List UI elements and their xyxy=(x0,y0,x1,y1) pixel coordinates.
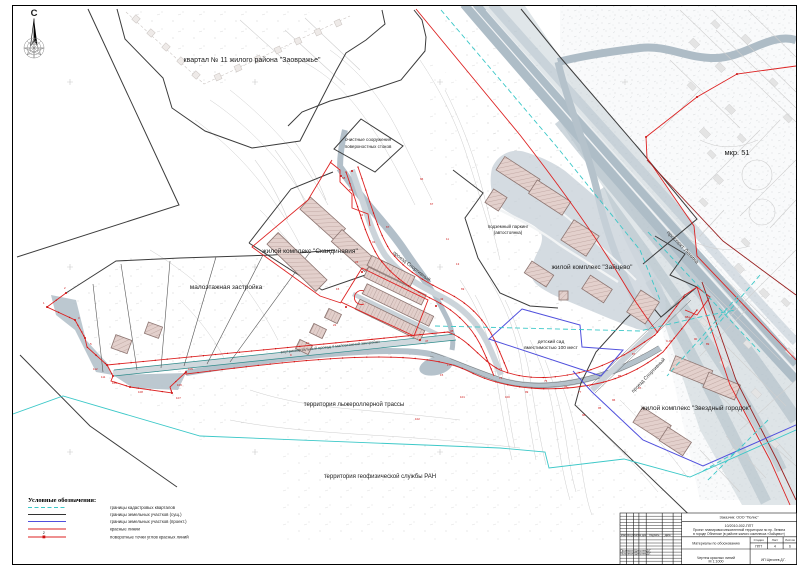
svg-text:Листов: Листов xyxy=(785,538,795,542)
svg-text:10: 10 xyxy=(306,341,310,345)
svg-text:59: 59 xyxy=(349,188,353,192)
svg-text:Щеголев Д.Г.: Щеголев Д.Г. xyxy=(635,552,652,556)
svg-text:Материалы по обоснованию: Материалы по обоснованию xyxy=(692,542,740,546)
svg-text:85: 85 xyxy=(618,374,622,378)
svg-text:96: 96 xyxy=(612,398,616,402)
svg-text:Подпись: Подпись xyxy=(649,533,660,537)
svg-text:красные линии: красные линии xyxy=(110,527,141,532)
svg-text:43: 43 xyxy=(440,297,444,301)
svg-text:границы земельных участков (су: границы земельных участков (сущ.) xyxy=(110,512,182,517)
svg-text:11: 11 xyxy=(446,237,449,241)
svg-text:67: 67 xyxy=(386,225,390,229)
svg-text:89: 89 xyxy=(706,342,710,346)
svg-text:112: 112 xyxy=(93,367,98,371)
svg-text:47: 47 xyxy=(425,339,429,343)
svg-text:квартал № 11 жилого района "За: квартал № 11 жилого района "Заовражье" xyxy=(184,56,321,64)
svg-text:74: 74 xyxy=(499,376,503,380)
svg-text:90: 90 xyxy=(694,337,698,341)
svg-text:Условные обозначения:: Условные обозначения: xyxy=(28,497,96,504)
svg-text:Дата: Дата xyxy=(665,533,671,537)
svg-text:очистные сооружения: очистные сооружения xyxy=(345,137,392,142)
svg-text:76: 76 xyxy=(564,385,568,389)
svg-text:67: 67 xyxy=(430,202,434,206)
svg-text:подземный паркинг: подземный паркинг xyxy=(488,223,529,229)
svg-text:Исполнил: Исполнил xyxy=(621,552,634,556)
svg-text:66: 66 xyxy=(420,177,424,181)
svg-text:109: 109 xyxy=(112,381,117,385)
svg-text:Лист: Лист xyxy=(772,538,779,542)
svg-text:22: 22 xyxy=(333,323,337,327)
svg-text:64: 64 xyxy=(360,213,364,217)
svg-text:15: 15 xyxy=(440,373,444,377)
svg-text:13: 13 xyxy=(456,262,460,266)
svg-text:99: 99 xyxy=(525,390,529,394)
svg-text:38: 38 xyxy=(450,329,454,333)
svg-text:ППТ: ППТ xyxy=(755,544,762,548)
svg-text:территория лыжероллерной трасс: территория лыжероллерной трассы xyxy=(304,401,404,408)
svg-text:15: 15 xyxy=(336,287,340,291)
svg-text:в городе Обнинске (в районе жи: в городе Обнинске (в районе жилого компл… xyxy=(693,532,785,536)
svg-text:С-91: С-91 xyxy=(666,339,673,343)
svg-text:Заказчик: ООО "Полис": Заказчик: ООО "Полис" xyxy=(719,516,759,520)
svg-text:100: 100 xyxy=(505,395,510,399)
svg-text:98: 98 xyxy=(582,413,586,417)
svg-text:территория геофизической служб: территория геофизической службы РАН xyxy=(324,473,436,480)
svg-text:102: 102 xyxy=(415,417,420,421)
svg-text:мкр. 51: мкр. 51 xyxy=(724,148,749,157)
svg-text:границы кадастровых кварталов: границы кадастровых кварталов xyxy=(110,505,176,510)
svg-text:ИП Щеголев Д.Г.: ИП Щеголев Д.Г. xyxy=(761,558,786,562)
svg-text:границы земельных участков (пр: границы земельных участков (проект.) xyxy=(110,519,187,524)
svg-text:Изм: Изм xyxy=(621,533,626,537)
svg-text:24: 24 xyxy=(355,260,359,264)
svg-text:17: 17 xyxy=(447,363,451,367)
svg-text:87: 87 xyxy=(632,352,636,356)
svg-text:58: 58 xyxy=(342,176,346,180)
svg-text:105: 105 xyxy=(188,367,193,371)
svg-text:Стадия: Стадия xyxy=(754,538,765,542)
svg-text:вместимостью 100 мест: вместимостью 100 мест xyxy=(524,345,578,351)
svg-text:поворотные точки углов красных: поворотные точки углов красных линий xyxy=(110,535,189,540)
svg-text:жилой комплекс "Скандинавия": жилой комплекс "Скандинавия" xyxy=(262,247,358,255)
svg-text:108: 108 xyxy=(138,390,143,394)
svg-text:73: 73 xyxy=(499,367,503,371)
svg-text:М 1:1000: М 1:1000 xyxy=(709,560,724,564)
svg-text:жилой комплекс "Звездный город: жилой комплекс "Звездный городок" xyxy=(641,404,751,412)
svg-text:88а: 88а xyxy=(685,315,690,319)
svg-text:111: 111 xyxy=(101,375,106,379)
svg-text:75: 75 xyxy=(544,379,548,383)
svg-text:2: 2 xyxy=(43,531,45,535)
svg-text:101: 101 xyxy=(460,395,465,399)
svg-text:№ док.: № док. xyxy=(638,534,647,537)
svg-text:жилой комплекс "Зайцево": жилой комплекс "Зайцево" xyxy=(552,263,634,271)
svg-text:С: С xyxy=(31,8,38,19)
svg-text:детский сад: детский сад xyxy=(538,338,565,345)
svg-text:95: 95 xyxy=(598,406,602,410)
svg-text:малоэтажная застройка: малоэтажная застройка xyxy=(190,283,263,291)
svg-text:поверхностных стоков: поверхностных стоков xyxy=(345,144,392,149)
svg-text:69: 69 xyxy=(461,287,465,291)
svg-text:6: 6 xyxy=(789,544,791,548)
svg-text:106: 106 xyxy=(177,383,182,387)
svg-text:31: 31 xyxy=(372,240,376,244)
svg-text:4: 4 xyxy=(774,544,776,548)
svg-text:107: 107 xyxy=(176,396,181,400)
svg-text:(автостоянка): (автостоянка) xyxy=(494,230,523,235)
svg-text:77: 77 xyxy=(578,390,582,394)
